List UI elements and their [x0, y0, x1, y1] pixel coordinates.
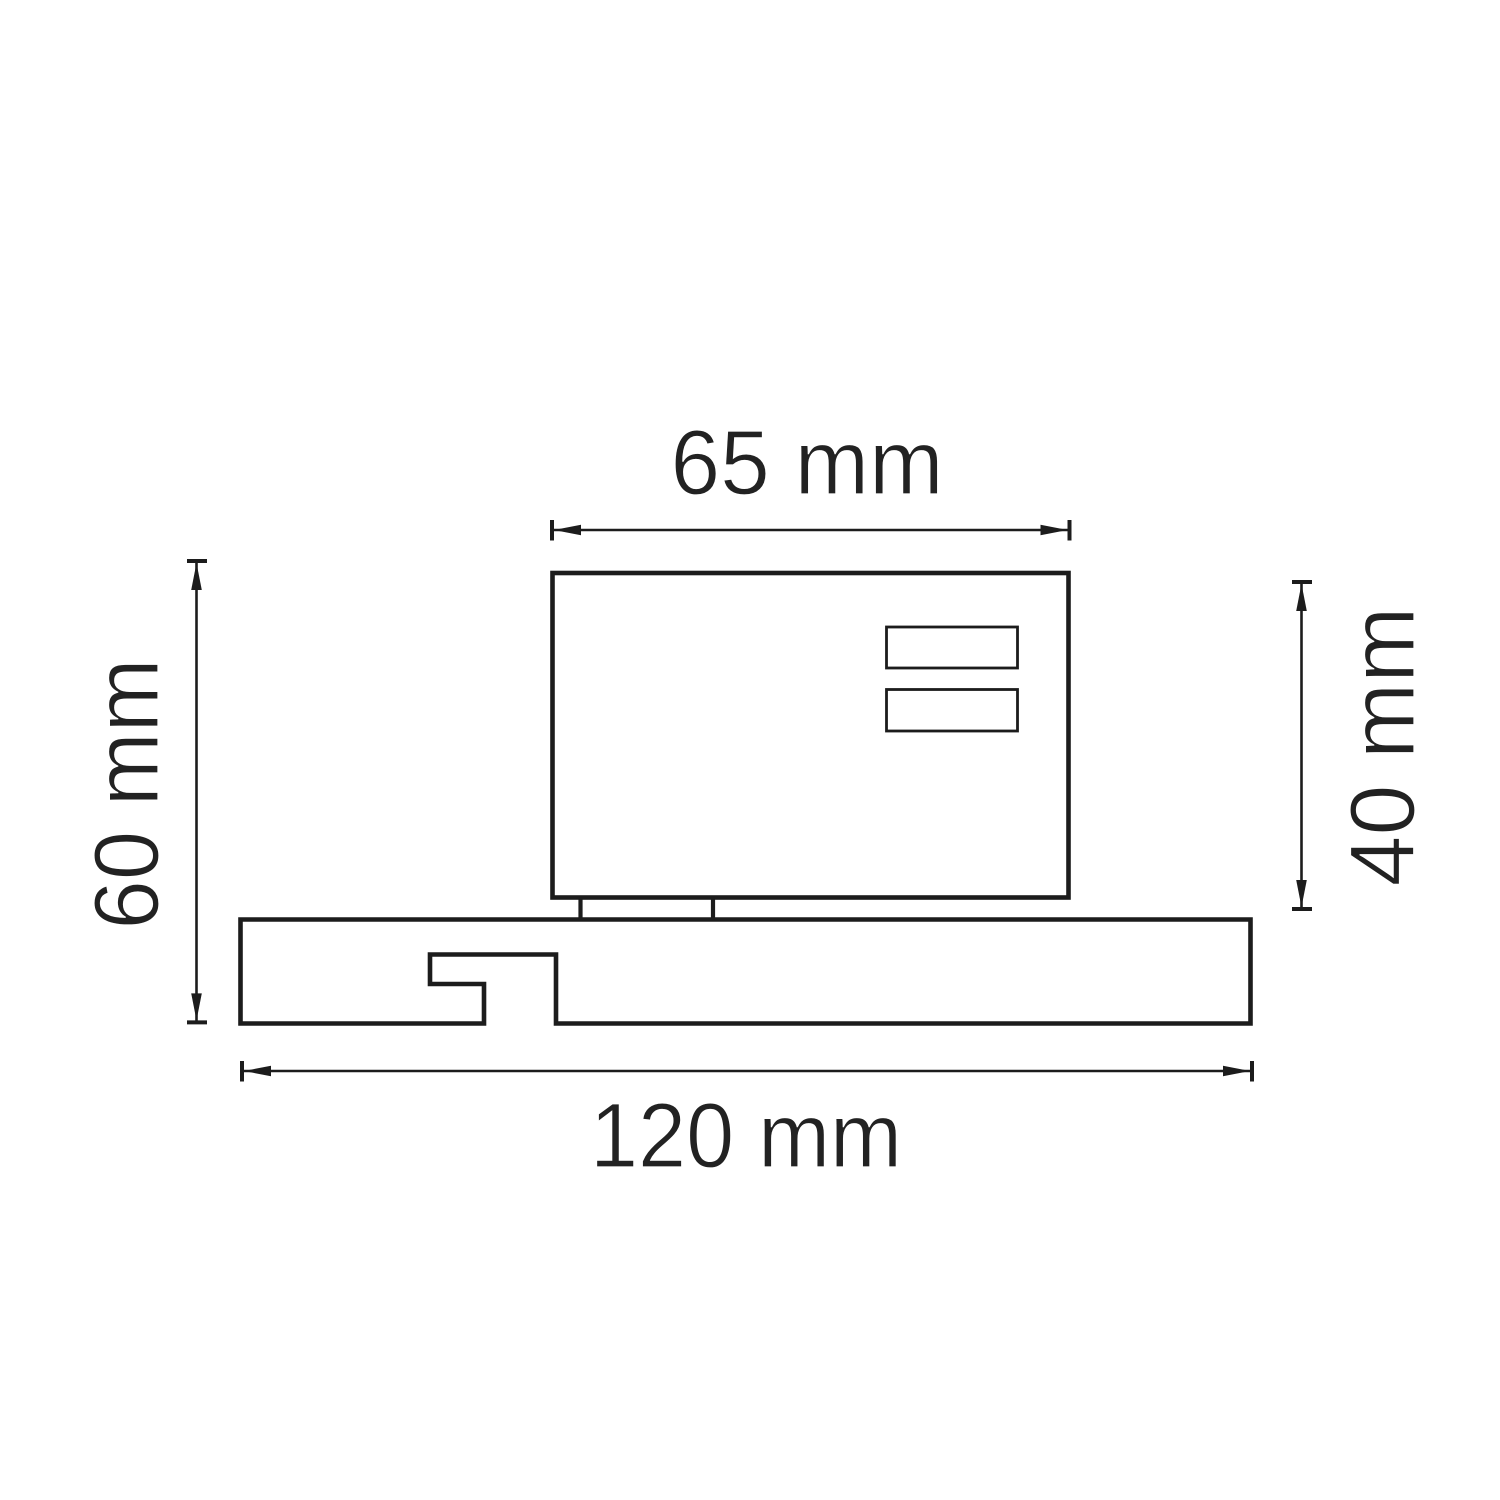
svg-text:60 mm: 60 mm	[76, 659, 178, 930]
svg-text:120 mm: 120 mm	[590, 1085, 902, 1187]
svg-text:40 mm: 40 mm	[1332, 607, 1434, 887]
svg-text:65 mm: 65 mm	[671, 412, 944, 514]
